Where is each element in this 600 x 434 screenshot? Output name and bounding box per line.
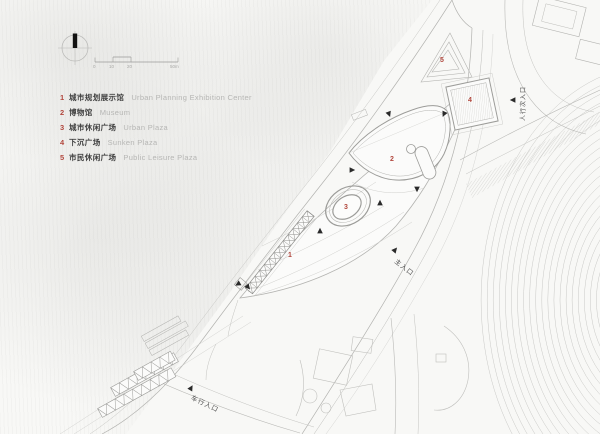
legend-item: 2 博物馆 Museum	[60, 108, 252, 117]
scale-tick-label: 0	[93, 64, 96, 69]
hill-contour-lines	[481, 65, 600, 434]
entrance-arrow-icon	[187, 384, 195, 392]
legend-item: 1 城市规划展示馆 Urban Planning Exhibition Cent…	[60, 93, 252, 102]
legend-item: 3 城市休闲广场 Urban Plaza	[60, 123, 252, 132]
legend-number: 4	[60, 138, 69, 147]
museum-building	[349, 106, 450, 181]
scale-tick-label: 50m	[170, 64, 179, 69]
legend-label-zh: 下沉广场	[69, 138, 101, 147]
site-plan-drawing	[0, 0, 600, 434]
entrance-label-pedestrian: 人行次入口	[518, 86, 527, 121]
entrance-arrow-icon	[350, 167, 356, 173]
scale-bar	[95, 57, 178, 62]
legend-label-en: Urban Plaza	[123, 123, 168, 132]
legend-item: 5 市民休闲广场 Public Leisure Plaza	[60, 153, 252, 162]
legend-number: 3	[60, 123, 69, 132]
scale-tick-label: 20	[127, 64, 132, 69]
legend-item: 4 下沉广场 Sunken Plaza	[60, 138, 252, 147]
legend-label-zh: 博物馆	[69, 108, 93, 117]
legend-number: 1	[60, 93, 69, 102]
corner-buildings	[527, 0, 600, 65]
legend-label-zh: 城市规划展示馆	[69, 93, 124, 102]
legend-label-zh: 市民休闲广场	[69, 153, 116, 162]
legend-label-en: Public Leisure Plaza	[123, 153, 197, 162]
legend-number: 5	[60, 153, 69, 162]
entrance-arrow-icon	[391, 246, 399, 254]
legend-label-en: Sunken Plaza	[108, 138, 158, 147]
legend-number: 2	[60, 108, 69, 117]
parking-strips	[141, 314, 192, 356]
legend-label-en: Museum	[100, 108, 131, 117]
plan-label-5: 5	[440, 57, 444, 64]
legend-label-en: Urban Planning Exhibition Center	[131, 93, 252, 102]
entrance-arrow-icon	[386, 111, 393, 118]
plan-label-2: 2	[390, 156, 394, 163]
plan-label-4: 4	[468, 97, 472, 104]
scale-tick-label: 10	[109, 64, 114, 69]
plan-label-1: 1	[288, 252, 292, 259]
north-arrow-icon	[58, 31, 92, 65]
entrance-arrow-icon	[510, 97, 516, 103]
site-plan-canvas: 0 10 20 50m 1 城市规划展示馆 Urban Planning Exh…	[0, 0, 600, 434]
legend: 1 城市规划展示馆 Urban Planning Exhibition Cent…	[60, 93, 252, 168]
legend-label-zh: 城市休闲广场	[69, 123, 116, 132]
terraced-plaza	[421, 33, 472, 82]
plan-label-3: 3	[344, 204, 348, 211]
slope-hatch-band	[466, 112, 600, 198]
